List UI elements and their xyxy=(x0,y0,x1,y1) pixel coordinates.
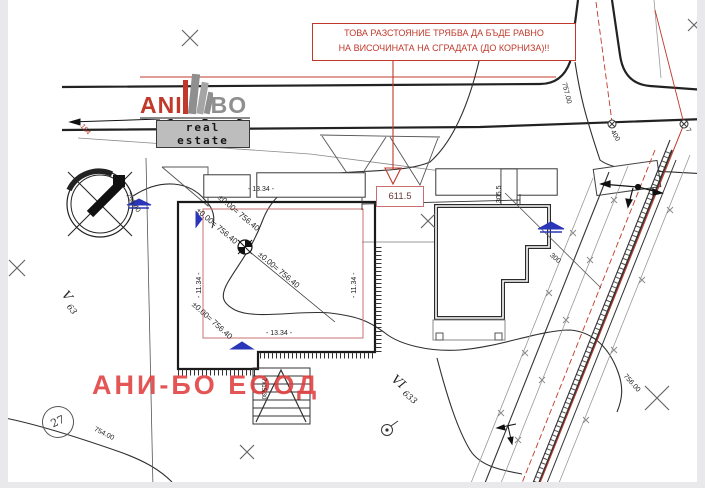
page-edge-bottom xyxy=(0,482,705,488)
dim-width-bottom: - 13.34 - xyxy=(266,330,292,337)
dim-depth-left: - 11.34 - xyxy=(196,272,203,298)
dim-depth-right: - 11.34 - xyxy=(351,272,358,298)
dim-width-top: - 13.34 - xyxy=(248,186,274,193)
annotation-note: ТОВА РАЗСТОЯНИЕ ТРЯБВА ДА БЪДЕ РАВНО НА … xyxy=(312,23,576,61)
proposed-building xyxy=(178,202,379,373)
brand-logo: ANI BO real estate xyxy=(140,72,250,134)
terrace xyxy=(433,320,505,340)
page-edge-right xyxy=(697,0,705,488)
logo-ani-text: ANI xyxy=(140,94,183,116)
planter-walls xyxy=(205,162,659,206)
existing-building xyxy=(433,206,549,340)
parcel-front-line xyxy=(78,138,480,176)
small-arrows xyxy=(497,424,516,444)
vertical-street-axis xyxy=(596,2,612,122)
watermark-text: АНИ-БО ЕООД xyxy=(92,370,319,401)
logo-bo-text: BO xyxy=(211,94,248,116)
dim-305: 305.5 xyxy=(496,185,503,203)
target-distance-badge: 611.5 xyxy=(376,186,424,207)
roundabout-symbol xyxy=(67,171,133,237)
site-plan-canvas xyxy=(0,0,705,488)
page-edge-left xyxy=(0,0,8,488)
stairs-note: 7x15/30 xyxy=(260,378,266,399)
logo-building-icon xyxy=(181,72,213,116)
annotation-line2: НА ВИСОЧИНАТА НА СГРАДАТА (ДО КОРНИЗА)!! xyxy=(313,41,575,56)
logo-tagline: real estate xyxy=(156,120,250,148)
annotation-line1: ТОВА РАЗСТОЯНИЕ ТРЯБВА ДА БЪДЕ РАВНО xyxy=(313,26,575,41)
benchmark-point xyxy=(382,421,399,436)
parcel-boundaries xyxy=(146,158,437,488)
